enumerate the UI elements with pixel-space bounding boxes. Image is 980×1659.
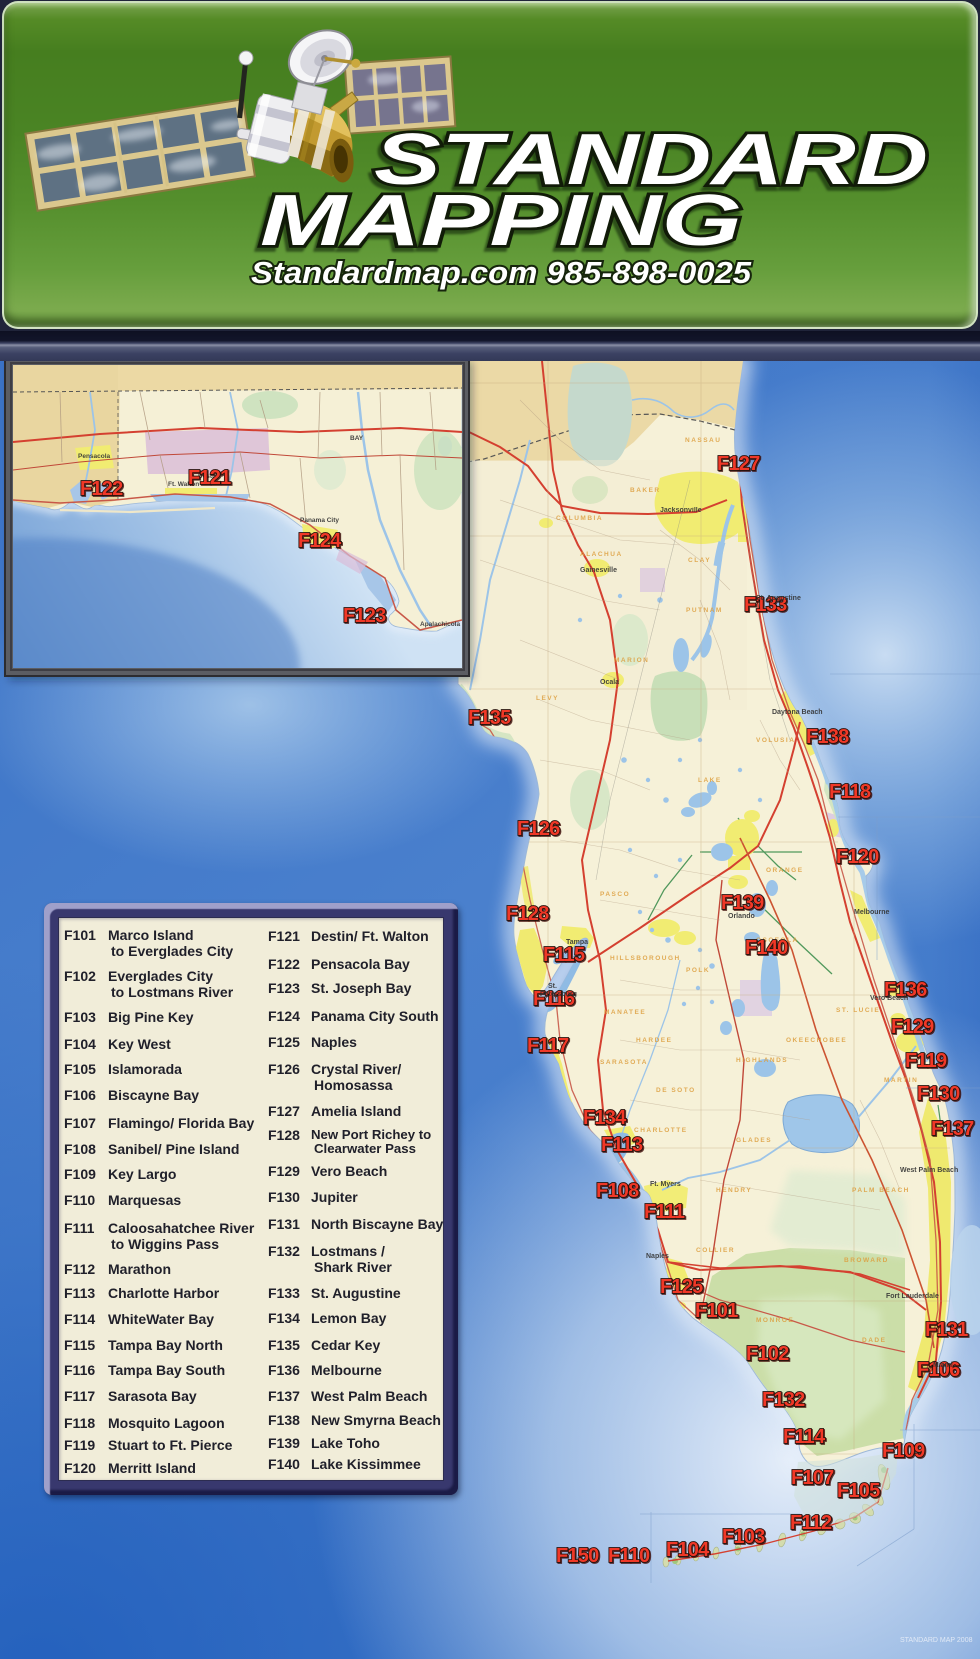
svg-text:St. Augustine: St. Augustine (756, 595, 801, 602)
svg-text:F111: F111 (644, 1201, 685, 1223)
svg-text:F113: F113 (601, 1134, 643, 1156)
svg-text:ORANGE: ORANGE (766, 867, 804, 874)
svg-text:F109: F109 (882, 1440, 925, 1462)
svg-text:F107: F107 (791, 1467, 834, 1489)
svg-text:F130: F130 (917, 1083, 960, 1105)
svg-text:Miami: Miami (933, 1362, 953, 1369)
svg-text:Vero Beach: Vero Beach (870, 995, 908, 1002)
svg-text:F132: F132 (762, 1389, 805, 1411)
svg-text:DE SOTO: DE SOTO (656, 1087, 696, 1094)
svg-text:STANDARD MAP 2008: STANDARD MAP 2008 (900, 1637, 973, 1644)
svg-text:MANATEE: MANATEE (604, 1009, 646, 1016)
svg-text:F124: F124 (298, 530, 342, 552)
svg-text:Ft. Myers: Ft. Myers (650, 1181, 681, 1188)
svg-text:F103: F103 (722, 1526, 765, 1548)
svg-text:F150: F150 (556, 1545, 599, 1567)
svg-text:F134: F134 (583, 1107, 627, 1129)
svg-text:Standardmap.com 985-898-0025: Standardmap.com 985-898-0025 (251, 255, 752, 290)
svg-text:Ocala: Ocala (600, 679, 619, 686)
svg-text:Apalachicola: Apalachicola (420, 621, 460, 628)
svg-text:F120: F120 (836, 846, 879, 868)
svg-text:HARDEE: HARDEE (636, 1037, 672, 1044)
svg-text:Panama City: Panama City (300, 517, 339, 524)
svg-text:GLADES: GLADES (736, 1137, 772, 1144)
svg-text:Orlando: Orlando (728, 913, 755, 920)
svg-text:OKEECHOBEE: OKEECHOBEE (786, 1037, 847, 1044)
svg-text:COLLIER: COLLIER (696, 1247, 735, 1254)
svg-text:Melbourne: Melbourne (854, 909, 889, 916)
svg-text:CHARLOTTE: CHARLOTTE (634, 1127, 688, 1134)
svg-text:Pensacola: Pensacola (78, 453, 111, 460)
svg-text:NASSAU: NASSAU (685, 437, 721, 444)
svg-text:Petersburg: Petersburg (540, 991, 577, 998)
svg-text:F126: F126 (517, 818, 560, 840)
svg-text:HILLSBOROUGH: HILLSBOROUGH (610, 955, 681, 962)
svg-text:SARASOTA: SARASOTA (600, 1059, 648, 1066)
svg-text:Daytona Beach: Daytona Beach (772, 709, 823, 716)
svg-text:F102: F102 (746, 1343, 789, 1365)
svg-text:BROWARD: BROWARD (844, 1257, 889, 1264)
svg-text:MONROE: MONROE (756, 1317, 794, 1324)
svg-text:F108: F108 (596, 1180, 639, 1202)
svg-text:F119: F119 (905, 1050, 947, 1072)
svg-text:St.: St. (548, 983, 557, 990)
svg-text:F140: F140 (745, 937, 788, 959)
svg-text:F112: F112 (790, 1512, 832, 1534)
svg-text:F105: F105 (837, 1480, 880, 1502)
svg-text:F125: F125 (660, 1276, 703, 1298)
svg-text:F117: F117 (527, 1035, 569, 1057)
svg-text:F135: F135 (468, 707, 511, 729)
svg-text:LAKE: LAKE (698, 777, 722, 784)
svg-text:ALACHUA: ALACHUA (580, 551, 623, 558)
svg-text:Fort Lauderdale: Fort Lauderdale (886, 1293, 939, 1300)
svg-text:Gainesville: Gainesville (580, 567, 617, 574)
svg-text:DADE: DADE (862, 1337, 886, 1344)
svg-text:West Palm Beach: West Palm Beach (900, 1167, 958, 1174)
svg-text:POLK: POLK (686, 967, 710, 974)
svg-text:PASCO: PASCO (600, 891, 630, 898)
svg-text:Naples: Naples (646, 1253, 669, 1260)
svg-text:Tampa: Tampa (566, 939, 588, 946)
svg-text:HIGHLANDS: HIGHLANDS (736, 1057, 788, 1064)
svg-text:F101: F101 (695, 1300, 738, 1322)
svg-text:F128: F128 (506, 903, 549, 925)
svg-text:PALM BEACH: PALM BEACH (852, 1187, 910, 1194)
svg-text:F110: F110 (608, 1545, 650, 1567)
svg-text:F129: F129 (891, 1016, 934, 1038)
svg-text:F114: F114 (783, 1426, 826, 1448)
svg-text:F122: F122 (80, 478, 123, 500)
svg-text:F138: F138 (806, 726, 849, 748)
svg-text:CLAY: CLAY (688, 557, 711, 564)
svg-text:F121: F121 (188, 467, 231, 489)
svg-text:F139: F139 (721, 892, 764, 914)
svg-text:F127: F127 (717, 453, 760, 475)
svg-text:BAY: BAY (350, 435, 364, 442)
svg-text:F131: F131 (925, 1319, 968, 1341)
svg-text:F123: F123 (343, 605, 386, 627)
svg-text:ST. LUCIE: ST. LUCIE (836, 1007, 880, 1014)
svg-text:LEVY: LEVY (536, 695, 559, 702)
svg-text:BAKER: BAKER (630, 487, 661, 494)
svg-text:MARTIN: MARTIN (884, 1077, 918, 1084)
svg-text:MAPPING: MAPPING (260, 181, 742, 261)
svg-text:F104: F104 (666, 1539, 710, 1561)
svg-text:F118: F118 (829, 781, 871, 803)
svg-text:Jacksonville: Jacksonville (660, 507, 702, 514)
svg-text:F115: F115 (543, 944, 585, 966)
svg-text:F137: F137 (931, 1118, 974, 1140)
